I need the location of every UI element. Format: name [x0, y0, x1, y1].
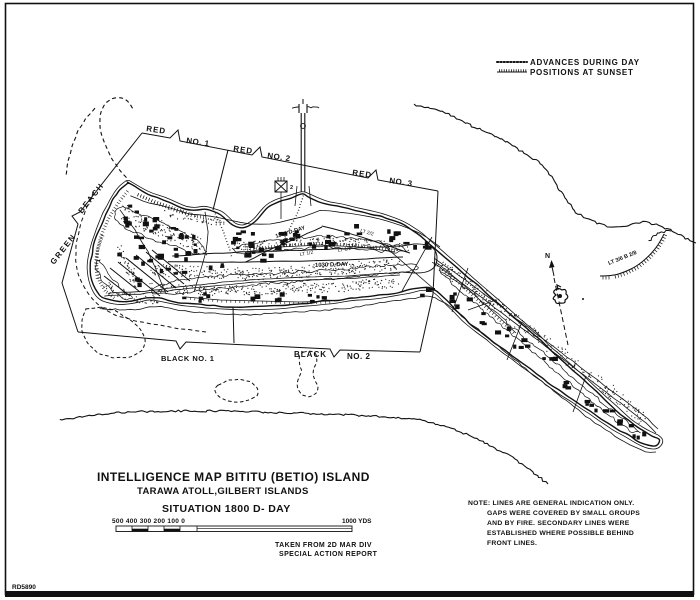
svg-text:BLACK NO. 1: BLACK NO. 1 [161, 354, 214, 363]
svg-text:FRONT LINES.: FRONT LINES. [487, 540, 537, 547]
svg-text:NOTE: LINES ARE GENERAL INDICA: NOTE: LINES ARE GENERAL INDICATION ONLY. [468, 500, 634, 507]
svg-text:TAKEN FROM 2D MAR DIV: TAKEN FROM 2D MAR DIV [275, 542, 372, 549]
svg-text:INTELLIGENCE MAP BITITU (BETIO: INTELLIGENCE MAP BITITU (BETIO) ISLAND [97, 470, 370, 484]
svg-text:N: N [545, 253, 550, 260]
svg-text:POSITIONS AT SUNSET: POSITIONS AT SUNSET [530, 68, 634, 77]
svg-text:1000 YDS: 1000 YDS [342, 518, 372, 525]
svg-text:SITUATION 1800 D- DAY: SITUATION 1800 D- DAY [162, 503, 291, 515]
svg-text:RD5890: RD5890 [12, 584, 36, 591]
svg-text:1030 D-DAY: 1030 D-DAY [315, 262, 349, 269]
svg-text:SPECIAL ACTION REPORT: SPECIAL ACTION REPORT [279, 551, 378, 558]
svg-text:ESTABLISHED WHERE POSSIBLE BE: ESTABLISHED WHERE POSSIBLE BEHIND [487, 530, 634, 537]
svg-text:GAPS WERE COVERED BY SMALL GRO: GAPS WERE COVERED BY SMALL GROUPS [487, 510, 640, 517]
svg-text:500 400 300 200 100 0: 500 400 300 200 100 0 [112, 518, 185, 525]
svg-text:2: 2 [290, 185, 293, 191]
svg-text:NO. 2: NO. 2 [347, 352, 370, 361]
svg-text:ADVANCES DURING DAY: ADVANCES DURING DAY [530, 58, 640, 67]
svg-text:TARAWA ATOLL,GILBERT ISLANDS: TARAWA ATOLL,GILBERT ISLANDS [137, 486, 309, 497]
svg-text:AND BY FIRE. SECONDARY LINES W: AND BY FIRE. SECONDARY LINES WERE [487, 520, 630, 527]
